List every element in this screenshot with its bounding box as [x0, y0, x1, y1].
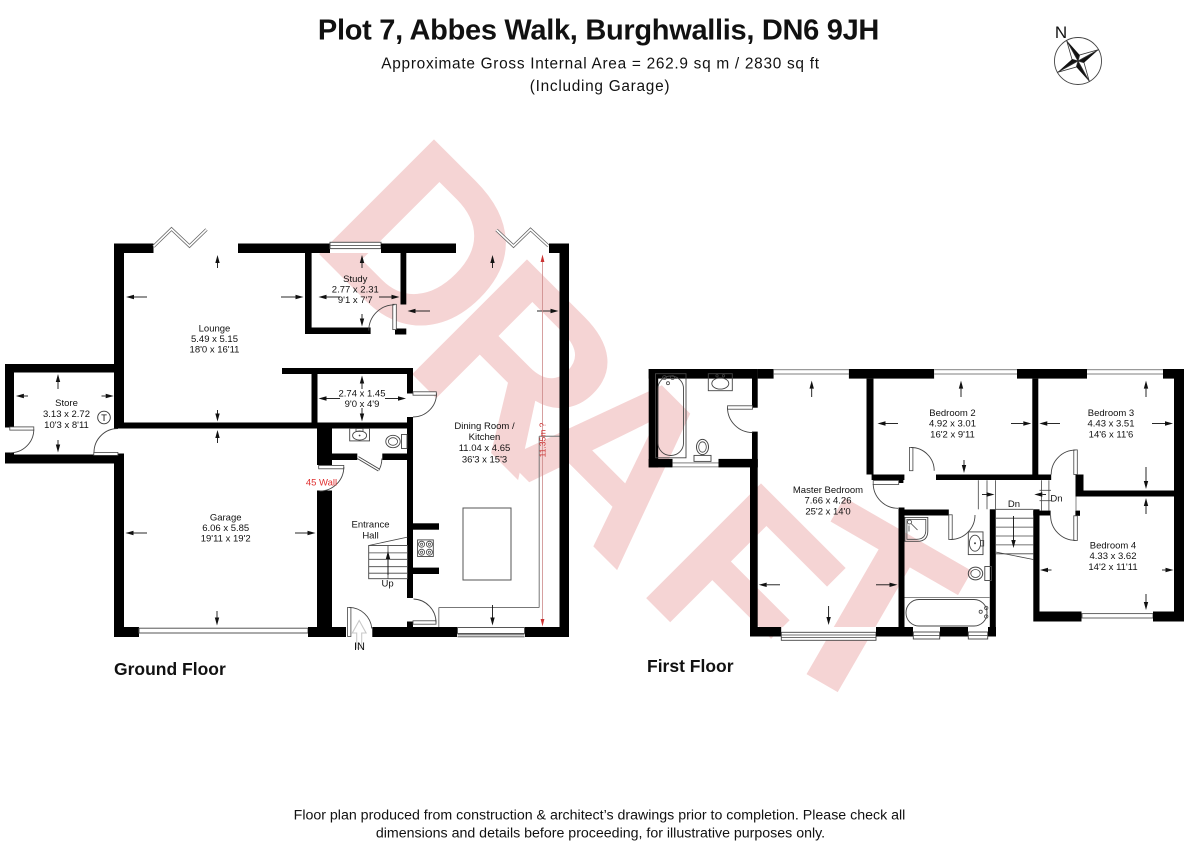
svg-text:(Including Garage): (Including Garage): [530, 78, 670, 95]
svg-text:45 Wall: 45 Wall: [306, 478, 337, 489]
svg-text:First Floor: First Floor: [647, 656, 734, 676]
svg-text:36'3 x 15'3: 36'3 x 15'3: [462, 454, 507, 465]
svg-text:Bedroom 2: Bedroom 2: [929, 408, 975, 419]
svg-text:Dn: Dn: [1008, 499, 1020, 510]
svg-text:7.66 x 4.26: 7.66 x 4.26: [804, 496, 851, 507]
svg-text:T: T: [101, 413, 107, 424]
svg-text:Garage: Garage: [210, 513, 242, 524]
svg-text:4.43 x 3.51: 4.43 x 3.51: [1087, 419, 1134, 430]
svg-text:14'6 x 11'6: 14'6 x 11'6: [1089, 429, 1134, 440]
svg-text:Lounge: Lounge: [199, 324, 231, 335]
svg-text:5.49 x 5.15: 5.49 x 5.15: [191, 334, 238, 345]
svg-text:IN: IN: [354, 641, 365, 653]
svg-text:16'2 x 9'11: 16'2 x 9'11: [930, 429, 975, 440]
svg-text:19'11 x 19'2: 19'11 x 19'2: [201, 534, 251, 545]
svg-text:Study: Study: [343, 274, 368, 285]
svg-text:Dining Room /: Dining Room /: [454, 421, 515, 432]
svg-text:Bedroom 3: Bedroom 3: [1088, 408, 1134, 419]
svg-text:Plot 7, Abbes Walk, Burghwalli: Plot 7, Abbes Walk, Burghwallis, DN6 9JH: [318, 15, 879, 47]
svg-text:9'1 x 7'7: 9'1 x 7'7: [338, 295, 373, 306]
svg-text:11.35m ?: 11.35m ?: [538, 422, 548, 457]
svg-text:Up: Up: [382, 579, 394, 590]
svg-text:2.77 x 2.31: 2.77 x 2.31: [332, 285, 379, 296]
svg-text:Floor plan produced from const: Floor plan produced from construction & …: [294, 808, 906, 824]
svg-text:Hall: Hall: [362, 531, 378, 542]
svg-text:Store: Store: [55, 398, 78, 409]
svg-text:4.33 x 3.62: 4.33 x 3.62: [1089, 551, 1136, 562]
svg-text:Master Bedroom: Master Bedroom: [793, 485, 863, 496]
svg-text:3.13 x 2.72: 3.13 x 2.72: [43, 409, 90, 420]
svg-text:11.04 x 4.65: 11.04 x 4.65: [459, 443, 511, 454]
svg-text:N: N: [1055, 23, 1067, 42]
svg-text:18'0 x 16'11: 18'0 x 16'11: [190, 345, 240, 356]
svg-text:6.06 x 5.85: 6.06 x 5.85: [202, 523, 249, 534]
svg-text:dimensions and details before: dimensions and details before proceeding…: [376, 826, 825, 842]
svg-text:2.74 x 1.45: 2.74 x 1.45: [338, 389, 385, 400]
svg-text:Entrance: Entrance: [351, 520, 389, 531]
svg-text:10'3 x 8'11: 10'3 x 8'11: [44, 420, 89, 431]
svg-text:4.92 x 3.01: 4.92 x 3.01: [929, 419, 976, 430]
svg-text:Kitchen: Kitchen: [469, 432, 501, 443]
svg-text:Approximate Gross Internal Are: Approximate Gross Internal Area = 262.9 …: [381, 56, 819, 73]
svg-text:14'2 x 11'11: 14'2 x 11'11: [1088, 562, 1137, 573]
svg-text:Dn: Dn: [1050, 494, 1062, 505]
svg-text:25'2 x 14'0: 25'2 x 14'0: [805, 506, 850, 517]
svg-text:Bedroom 4: Bedroom 4: [1090, 541, 1136, 552]
svg-text:Ground Floor: Ground Floor: [114, 659, 226, 679]
